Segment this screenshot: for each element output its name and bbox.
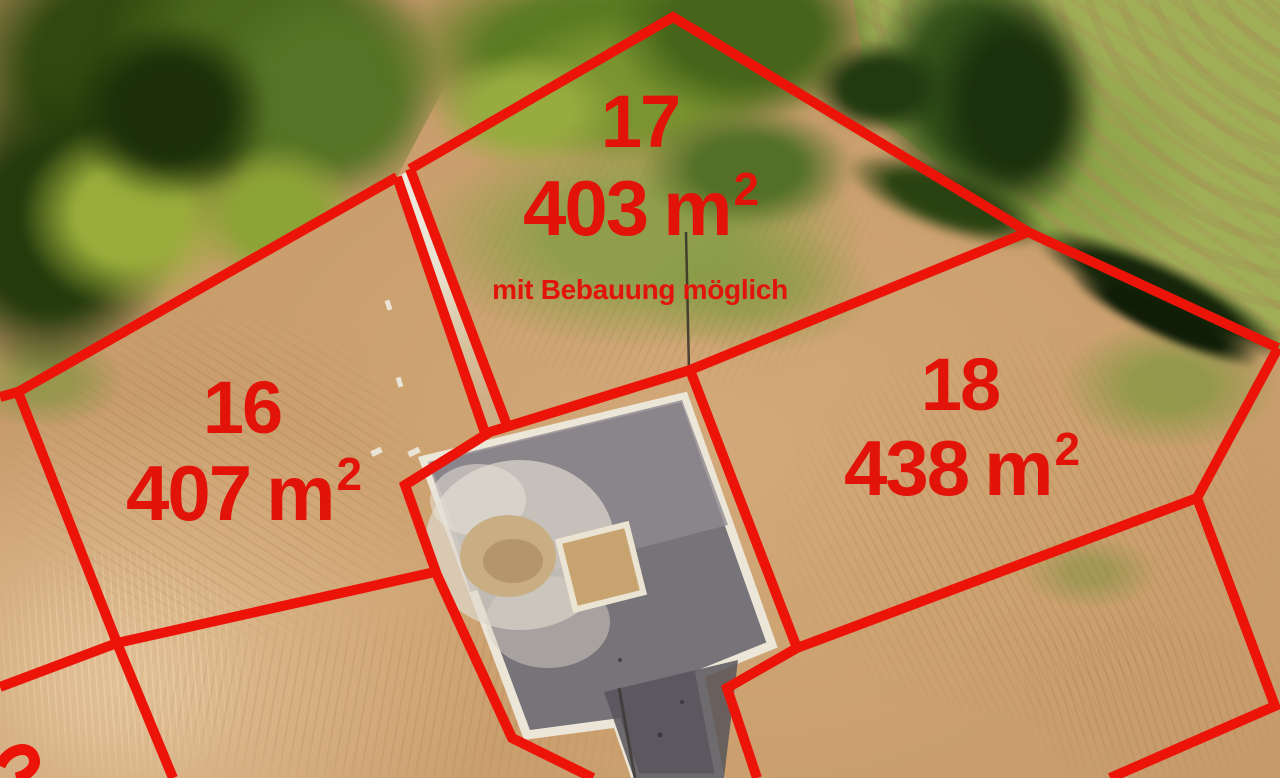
area-value: 438 — [844, 424, 968, 512]
plot-18-area: 438m2 — [844, 429, 1078, 507]
plot-16-area: 407m2 — [126, 454, 360, 532]
sand-pile-shadow — [483, 539, 543, 583]
marker-stone — [385, 300, 393, 311]
boundary-plot16-south — [117, 572, 435, 643]
marker-stone — [396, 377, 404, 388]
boundary-plot18-south — [797, 498, 1197, 648]
boundary-southwest — [0, 643, 117, 687]
area-unit: m — [663, 164, 730, 252]
boundary-road-east-step — [727, 648, 797, 778]
boundary-path-west — [397, 177, 485, 433]
area-value: 403 — [523, 164, 647, 252]
sand-square-pad — [559, 525, 644, 610]
boundary-plot18-east — [1197, 348, 1278, 498]
area-value: 407 — [126, 449, 250, 537]
plot-16-number: 16 — [203, 371, 281, 445]
area-superscript: 2 — [1054, 426, 1078, 472]
area-superscript: 2 — [336, 451, 360, 497]
partial-plot-label-glyph — [0, 750, 35, 778]
marker-stone — [407, 447, 420, 458]
aerial-photo-stage: 16 407m2 17 403m2 mit Bebauung möglich 1… — [0, 0, 1280, 778]
plot-17-note: mit Bebauung möglich — [492, 276, 788, 304]
area-superscript: 2 — [733, 166, 757, 212]
plot-17-area: 403m2 — [523, 169, 757, 247]
boundary-plot18-north — [1028, 232, 1278, 348]
boundary-treeline-west — [0, 177, 397, 397]
plot-18-number: 18 — [921, 348, 999, 422]
asphalt-speck — [658, 733, 663, 738]
boundary-plot18-southeast — [1110, 498, 1275, 778]
asphalt-speck — [680, 700, 684, 704]
asphalt-speck — [618, 658, 622, 662]
marker-stone — [370, 447, 383, 457]
plot-17-number: 17 — [601, 85, 679, 159]
area-unit: m — [266, 449, 333, 537]
area-unit: m — [984, 424, 1051, 512]
